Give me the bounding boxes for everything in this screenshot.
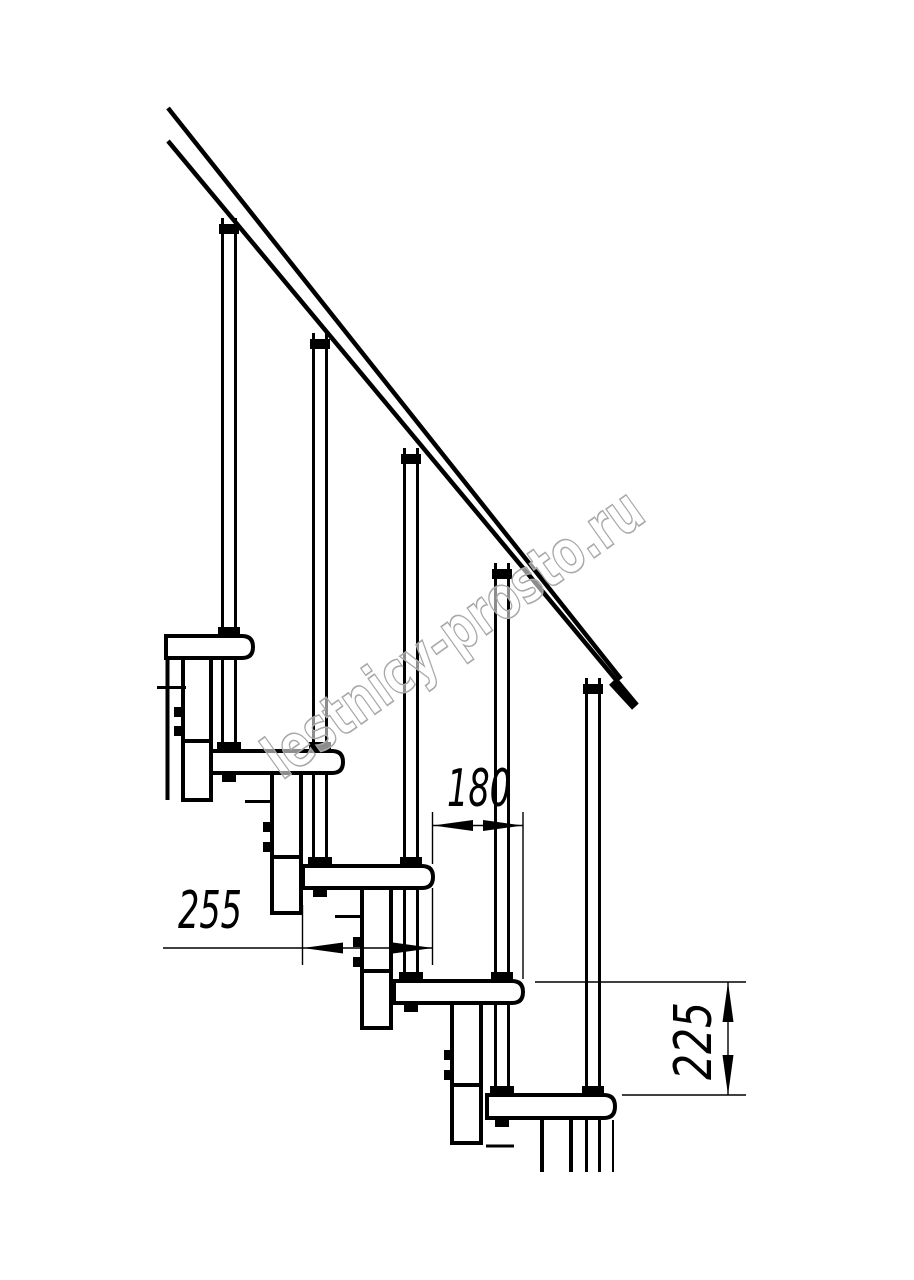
tread-1 [166,636,253,658]
modular-staircase-side-view-drawing: 180 255 225 lestnicy-prosto.ru [0,0,914,1280]
arrowhead-left [303,943,343,954]
clamp-bolt [174,707,183,717]
clamp-bolt [174,726,183,736]
dimension-going-label: 180 [447,759,511,819]
arrowhead-right [393,943,433,954]
baluster-1 [217,218,241,782]
baluster-rail-collar [219,224,239,234]
clamp-bolt [444,1070,453,1080]
arrowhead-down [723,1055,734,1095]
baluster-base-collar [308,857,332,866]
baluster-3 [399,448,423,1012]
baluster-2 [308,333,332,897]
clamp-bolt [353,957,362,967]
fastening-nut [313,889,327,897]
baluster-rail-collar [401,454,421,464]
baluster-rail-collar [583,684,603,694]
baluster-base-collar [490,1086,514,1095]
support-column-3 [335,888,393,1028]
support-column-1 [157,636,213,800]
dimension-rise-label: 225 [664,1002,724,1080]
clamp-bolt [444,1050,453,1060]
dimension-tread-depth-label: 255 [178,881,242,941]
baluster-rail-collar [310,339,330,349]
clamp-bolt [263,842,272,852]
fastening-nut [222,774,236,782]
support-column-5 [542,1118,613,1172]
fastening-nut [495,1119,509,1127]
baluster-base-collar [217,742,241,751]
arrowhead-right [483,820,523,831]
dimension-rise-225: 225 [535,982,746,1095]
tread-clamp-fitting [218,627,240,636]
tread-clamp-fitting [491,972,513,981]
arrowhead-up [723,982,734,1022]
arrowhead-left [433,820,473,831]
tread-clamp-fitting [582,1086,604,1095]
clamp-bolt [353,937,362,947]
tread-4 [394,981,523,1003]
handrail [168,108,637,707]
clamp-bolt [263,822,272,832]
tread-5 [487,1095,615,1118]
fastening-nut [404,1004,418,1012]
tread-clamp-fitting [400,857,422,866]
technical-drawing-page: 180 255 225 lestnicy-prosto.ru [0,0,914,1280]
tread-3 [303,866,433,888]
support-column-2 [245,773,303,913]
watermark-text: lestnicy-prosto.ru [250,475,657,793]
baluster-base-collar [399,972,423,981]
